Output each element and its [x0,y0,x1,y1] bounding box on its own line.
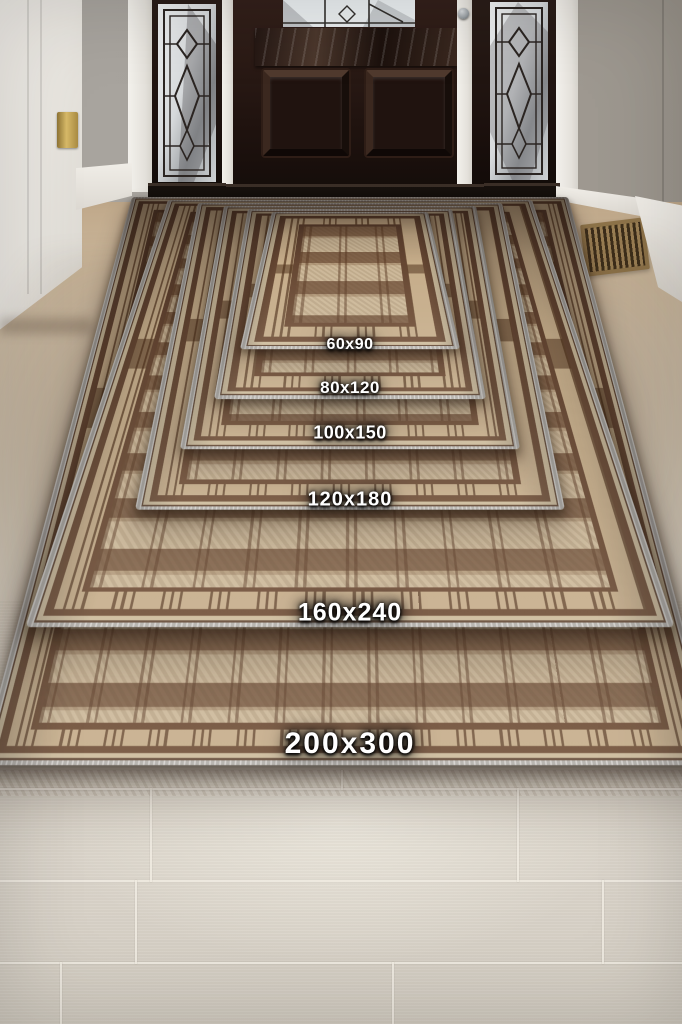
entryway-photo: 60x90 80x120 100x150 120x180 160x240 200… [0,0,682,1024]
rug-size-label-160x240: 160x240 [298,599,402,628]
sidelight-glass [490,2,548,180]
floor-grout-line [150,788,152,882]
door-panel [263,70,349,156]
front-door [233,0,457,188]
door-frame-trim [556,0,578,192]
rug-size-label-100x150: 100x150 [313,423,387,444]
rug-brown-band [254,216,445,342]
rug-tally-border [263,218,437,337]
rug-size-label-200x300: 200x300 [285,727,416,761]
door-window-glass [283,0,415,27]
floor-grout-line [135,880,137,964]
door-rail [255,28,457,66]
rug-brown-band-inner [284,225,416,327]
door-frame-trim [222,0,233,188]
sidelight-glass [158,4,216,182]
floor-grout-line [0,962,682,964]
sidelight-right [472,0,556,188]
rug-field [291,227,408,323]
rug-size-label-120x180: 120x180 [308,489,393,512]
rug-size-label-60x90: 60x90 [327,336,374,354]
rug-60x90 [240,212,460,349]
rug-size-label-80x120: 80x120 [320,378,380,398]
door-hinge [57,112,78,148]
sidelight-left [152,0,222,188]
floor-grout-line [60,962,62,1024]
door-panel [366,70,452,156]
door-knob [458,8,469,19]
rug-binding [240,212,460,349]
floor-grout-line [517,788,519,882]
floor-grout-line [341,770,343,790]
wall-corner-line [662,0,664,208]
floor-grout-line [0,880,682,882]
door-frame-trim [457,0,472,188]
rug-outer-border [247,214,454,346]
floor-grout-line [602,880,604,964]
floor-grout-line [392,962,394,1024]
